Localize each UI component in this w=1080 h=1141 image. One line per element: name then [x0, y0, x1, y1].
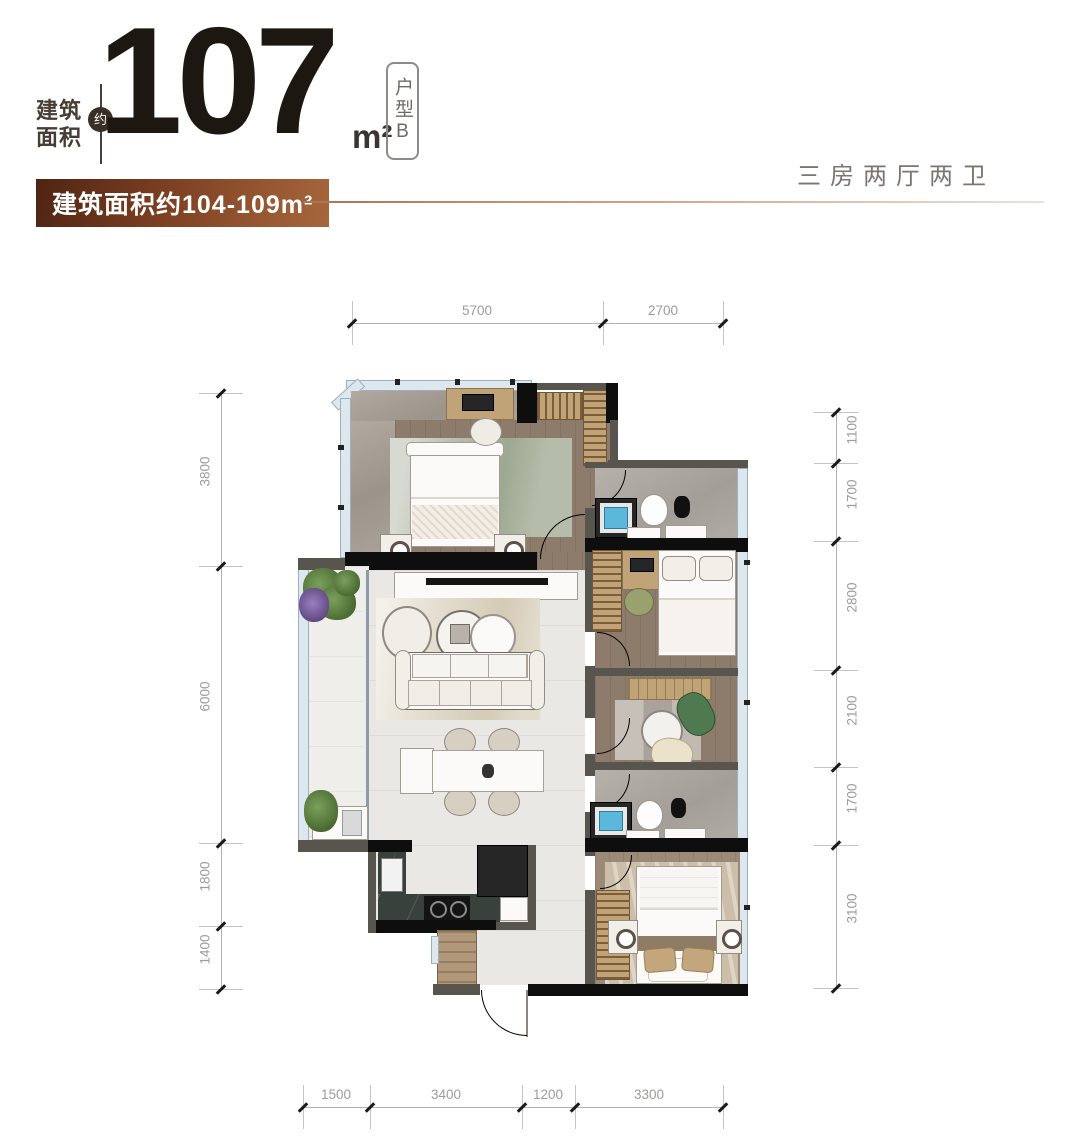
dimension-label: 1200 — [528, 1087, 568, 1102]
dimension-label: 1400 — [198, 949, 213, 965]
dimension-label: 2100 — [845, 710, 860, 726]
dimension-annotations: 5700270015003400120033003800600018001400… — [0, 0, 1080, 1141]
dimension-label: 3300 — [629, 1087, 669, 1102]
dimension-label: 1800 — [198, 876, 213, 892]
dimension-line — [352, 323, 723, 324]
dimension-label: 5700 — [457, 303, 497, 318]
dimension-label: 2800 — [845, 597, 860, 613]
dimension-label: 3100 — [845, 908, 860, 924]
dimension-label: 3400 — [426, 1087, 466, 1102]
dimension-label: 1700 — [845, 494, 860, 510]
dimension-label: 3800 — [198, 471, 213, 487]
dimension-line — [836, 412, 837, 988]
dimension-label: 1100 — [845, 429, 860, 445]
dimension-label: 1500 — [316, 1087, 356, 1102]
dimension-label: 6000 — [198, 696, 213, 712]
dimension-line — [221, 393, 222, 989]
dimension-label: 1700 — [845, 798, 860, 814]
dimension-label: 2700 — [643, 303, 683, 318]
